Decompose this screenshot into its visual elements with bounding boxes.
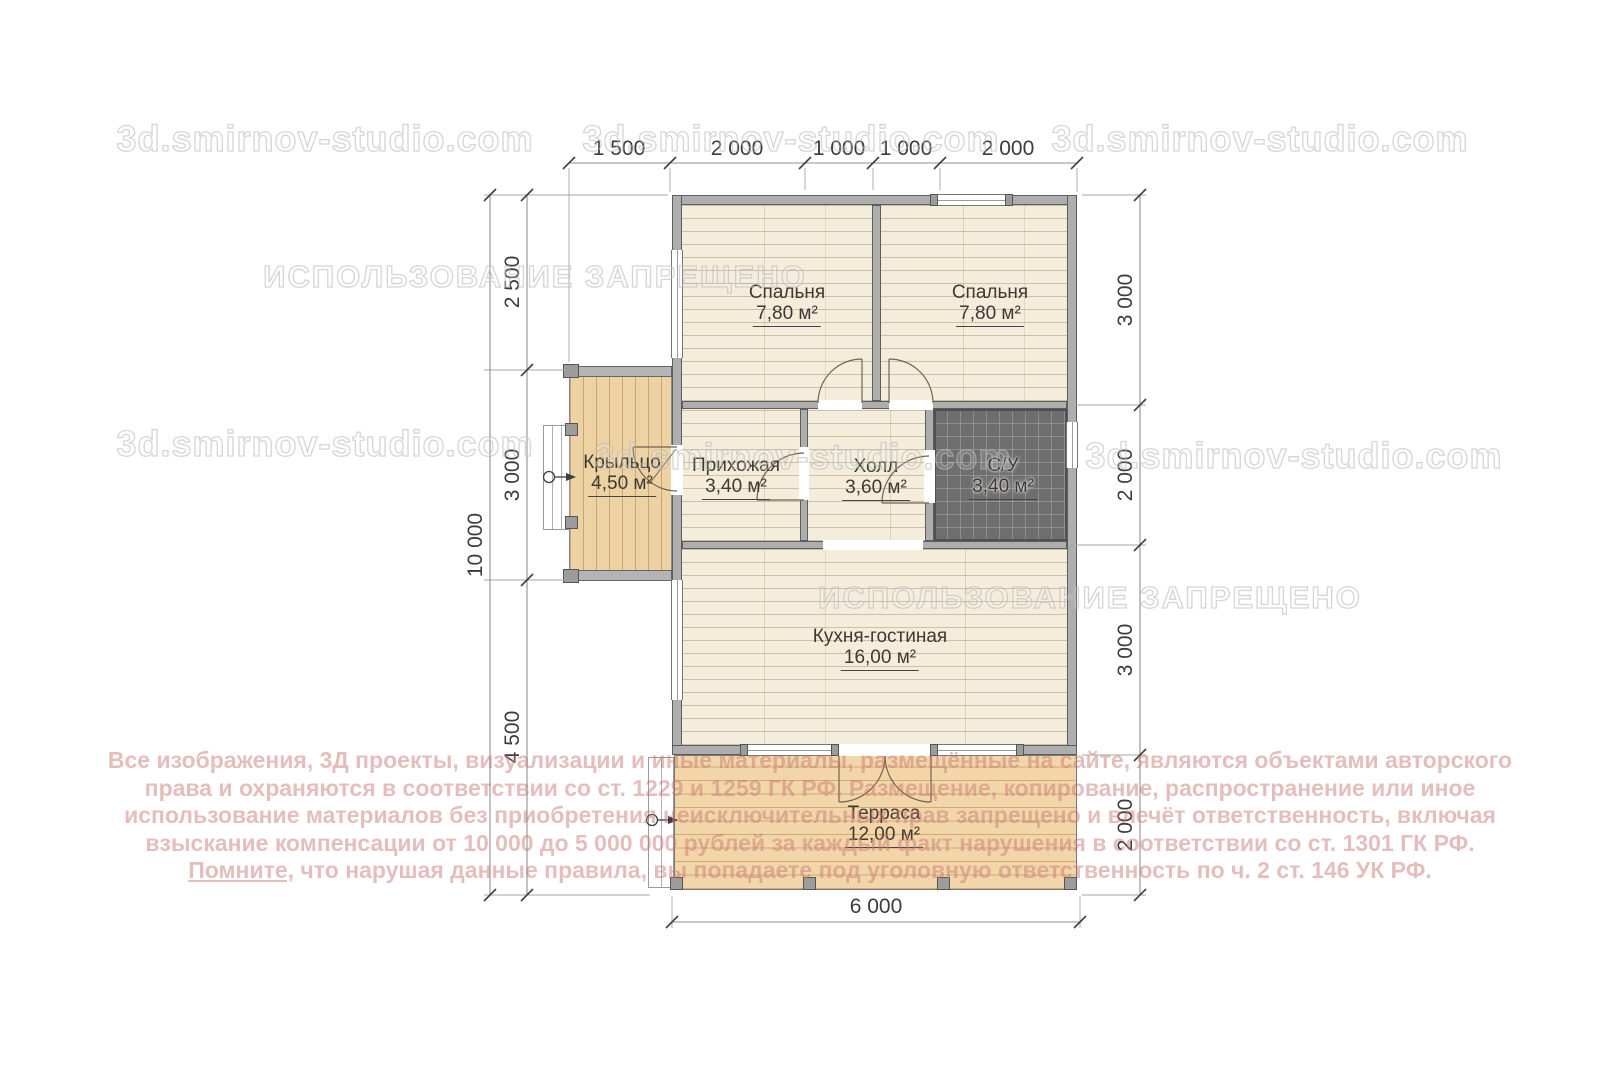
- copyright-line: Все изображения, 3Д проекты, визуализаци…: [0, 747, 1620, 775]
- room-name: Кухня-гостиная: [813, 626, 947, 647]
- copyright-line: права и охраняются в соответствии со ст.…: [0, 775, 1620, 803]
- dim-bottom-6000: 6 000: [850, 895, 903, 919]
- dim-right-3000a: 3 000: [1114, 274, 1138, 327]
- watermark-forbidden: ИСПОЛЬЗОВАНИЕ ЗАПРЕЩЕНО: [818, 580, 1362, 616]
- copyright-notice: Все изображения, 3Д проекты, визуализаци…: [0, 747, 1620, 885]
- copyright-reminder-rest: что нарушая данные правила, вы попадаете…: [294, 857, 1432, 883]
- room-label-kitchen: Кухня-гостиная 16,00 м²: [813, 626, 947, 671]
- dim-left-10000: 10 000: [464, 513, 488, 577]
- copyright-line: использование материалов без приобретени…: [0, 802, 1620, 830]
- entry-arrow-porch: [544, 472, 577, 483]
- copyright-line: Помните, что нарушая данные правила, вы …: [0, 857, 1620, 885]
- copyright-reminder-lead: Помните,: [188, 857, 294, 883]
- room-area: 3,40 м²: [969, 476, 1037, 500]
- room-name: Спальня: [952, 282, 1028, 303]
- dim-right-3000b: 3 000: [1114, 624, 1138, 677]
- room-area: 3,60 м²: [842, 477, 910, 501]
- watermark-site: 3d.smirnov-studio.com: [1085, 435, 1502, 477]
- watermark-site: 3d.smirnov-studio.com: [1051, 118, 1468, 160]
- room-area: 7,80 м²: [956, 303, 1024, 327]
- room-area: 16,00 м²: [841, 647, 919, 671]
- room-area: 7,80 м²: [753, 303, 821, 327]
- watermark-forbidden: ИСПОЛЬЗОВАНИЕ ЗАПРЕЩЕНО: [263, 259, 807, 295]
- room-area: 3,40 м²: [702, 476, 770, 500]
- floor-plan-canvas: Спальня 7,80 м² Спальня 7,80 м² Крыльцо …: [0, 0, 1620, 1080]
- copyright-line: взыскание компенсации от 10 000 до 5 000…: [0, 830, 1620, 858]
- room-label-bedroom2: Спальня 7,80 м²: [952, 282, 1028, 327]
- watermark-site: 3d.smirnov-studio.com: [116, 423, 533, 465]
- watermark-site: 3d.smirnov-studio.com: [116, 118, 533, 160]
- watermark-site: 3d.smirnov-studio.com: [582, 118, 999, 160]
- dimension-and-door-linework: [0, 0, 1620, 1080]
- watermark-site: 3d.smirnov-studio.com: [594, 436, 1011, 478]
